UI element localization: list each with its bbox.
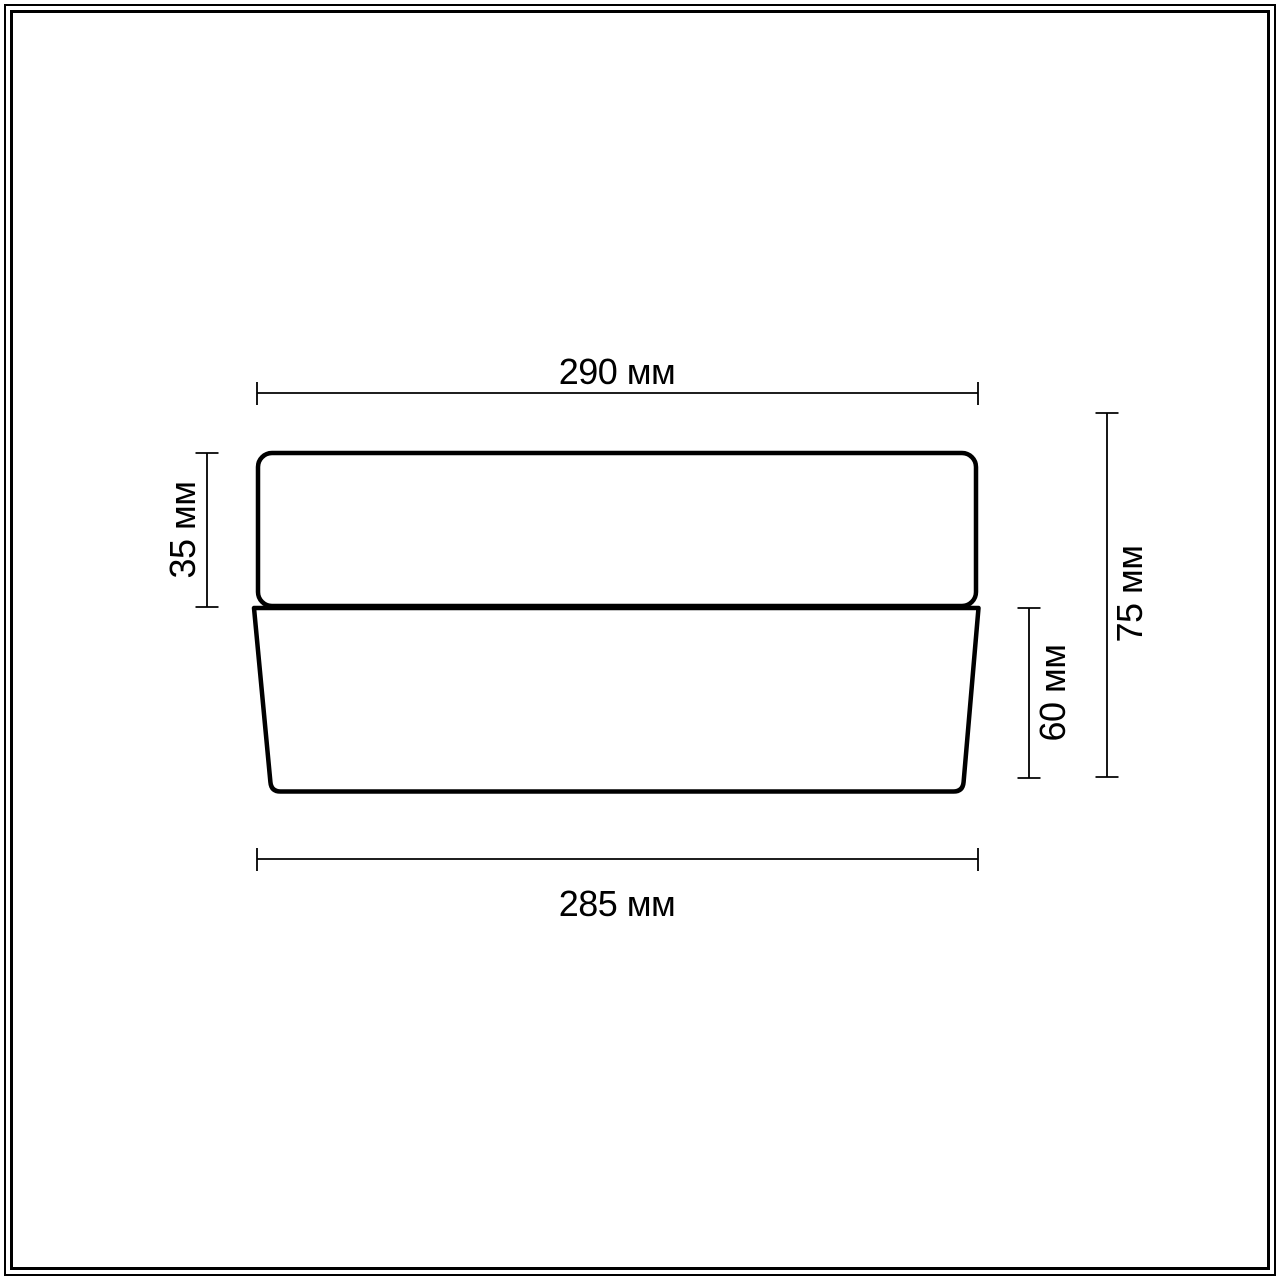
fixture-base-outline xyxy=(254,608,979,792)
dim-base-height: 60 мм xyxy=(1018,608,1074,778)
dim-base-height-label: 60 мм xyxy=(1032,644,1073,741)
dim-bottom-width: 285 мм xyxy=(257,848,978,924)
fixture-outline xyxy=(254,453,979,792)
dim-bottom-width-label: 285 мм xyxy=(559,883,676,924)
dim-shade-height: 35 мм xyxy=(162,453,218,607)
dim-shade-height-label: 35 мм xyxy=(162,481,203,578)
fixture-shade-outline xyxy=(258,453,976,606)
dim-bottom-width-line xyxy=(257,848,978,871)
dim-top-width: 290 мм xyxy=(257,351,978,405)
dim-top-width-label: 290 мм xyxy=(559,351,676,392)
diagram-page: 290 мм 35 мм 60 мм 75 мм 285 мм xyxy=(0,0,1280,1280)
dim-total-height: 75 мм xyxy=(1096,413,1151,777)
dim-total-height-label: 75 мм xyxy=(1109,545,1150,642)
dimension-drawing: 290 мм 35 мм 60 мм 75 мм 285 мм xyxy=(0,0,1280,1280)
